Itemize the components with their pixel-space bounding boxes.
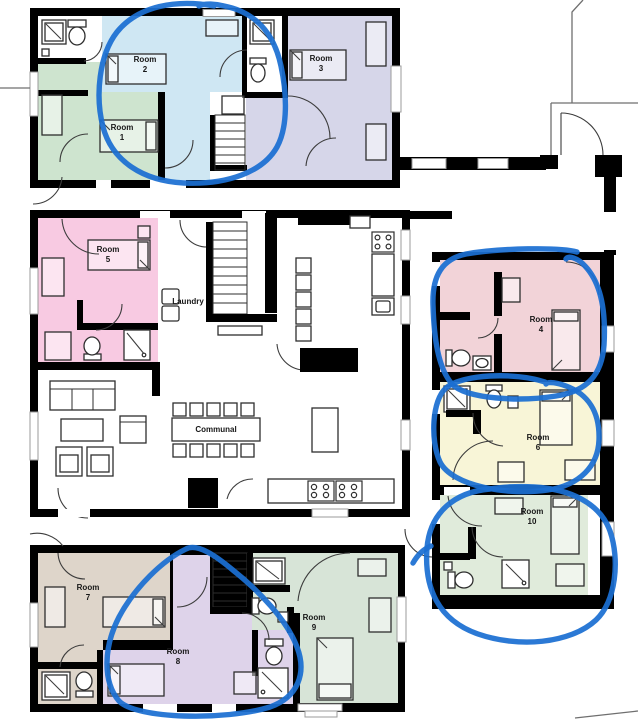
bed-icon — [317, 638, 353, 700]
opening — [604, 212, 616, 250]
opening — [140, 211, 170, 218]
window — [30, 72, 38, 116]
room-4-label-name: Room — [530, 315, 553, 324]
bed-icon — [552, 310, 580, 370]
armchair-icon — [56, 447, 82, 476]
chair-icon — [224, 403, 237, 416]
cabinet-icon — [45, 332, 71, 360]
window — [401, 420, 410, 450]
communal-label: Communal — [195, 425, 236, 434]
window — [30, 603, 38, 647]
cabinet-icon — [222, 96, 244, 114]
desk-icon — [366, 124, 386, 160]
sink-icon — [372, 298, 394, 315]
sink-icon — [444, 562, 452, 570]
desk-icon — [206, 20, 238, 36]
sofa-icon — [50, 381, 115, 410]
room-1-label-number: 1 — [120, 133, 125, 142]
bed-icon — [108, 664, 164, 696]
interior-wall — [242, 92, 288, 98]
desk-icon — [502, 278, 520, 302]
coffee-table-icon — [61, 419, 103, 441]
window — [391, 66, 401, 112]
interior-wall — [440, 553, 470, 560]
wardrobe-icon — [42, 258, 64, 296]
window — [30, 412, 38, 460]
interior-wall — [206, 222, 213, 314]
stove-icon — [372, 232, 394, 252]
chair-icon — [173, 444, 186, 457]
window — [312, 509, 348, 517]
window — [602, 420, 614, 446]
toilet-icon — [448, 572, 473, 588]
entry-door-arc — [561, 113, 603, 155]
door-opening — [58, 509, 90, 517]
wardrobe-icon — [42, 95, 62, 135]
sink-icon — [42, 49, 49, 56]
shower-icon — [253, 558, 285, 584]
sink-icon — [473, 356, 491, 370]
dining-chairs-top — [173, 403, 254, 416]
bed-icon — [551, 496, 579, 554]
interior-wall — [242, 16, 247, 92]
shower-icon — [502, 560, 529, 588]
toilet-icon — [84, 337, 101, 360]
wing-right: Room 4 Room 6 — [432, 252, 614, 609]
window — [401, 296, 410, 324]
room-4-label-number: 4 — [539, 325, 544, 334]
desk-icon — [498, 462, 524, 482]
shower-icon — [42, 672, 70, 700]
room-10-label-name: Room — [521, 507, 544, 516]
wardrobe-icon — [45, 587, 65, 627]
room-8-label-number: 8 — [176, 657, 181, 666]
toilet-icon — [265, 639, 283, 665]
door-arc — [30, 533, 63, 546]
armchair-icon — [87, 447, 113, 476]
interior-wall — [494, 272, 502, 316]
bed-icon — [103, 597, 165, 627]
window — [401, 230, 410, 260]
counter-icon — [372, 254, 394, 296]
window — [412, 159, 446, 169]
room-10-label-number: 10 — [528, 517, 537, 526]
shower-icon — [124, 330, 150, 360]
chair-icon — [241, 403, 254, 416]
room-1-label-name: Room — [111, 123, 134, 132]
interior-wall — [252, 630, 258, 676]
interior-wall — [206, 314, 277, 322]
room-9-label-name: Room — [303, 613, 326, 622]
desk-icon — [366, 22, 386, 66]
laundry-label: Laundry — [172, 297, 204, 306]
interior-wall — [103, 640, 173, 650]
room-5-label-number: 5 — [106, 255, 111, 264]
chair-icon — [224, 444, 237, 457]
interior-wall — [83, 323, 158, 330]
kitchen-island-icon — [312, 408, 338, 452]
room-8-label-name: Room — [167, 647, 190, 656]
room-2-label-number: 2 — [143, 65, 148, 74]
room-3-label-name: Room — [310, 54, 333, 63]
interior-wall — [30, 362, 160, 370]
chair-icon — [190, 444, 203, 457]
block-top-left: Room 1 Room 2 Room 3 — [30, 8, 401, 204]
room-7-label-name: Room — [77, 583, 100, 592]
interior-wall — [265, 213, 277, 313]
opening — [242, 211, 266, 218]
window — [397, 597, 406, 642]
interior-wall — [77, 300, 83, 330]
interior-wall — [446, 410, 476, 417]
window — [30, 268, 38, 314]
room-6-label-number: 6 — [536, 443, 541, 452]
chair-icon — [207, 444, 220, 457]
interior-wall — [494, 334, 502, 372]
entry-steps — [298, 704, 342, 717]
shower-icon — [42, 20, 66, 44]
cabinet-icon — [358, 559, 386, 576]
room-2-label-name: Room — [134, 55, 157, 64]
room-3-label-number: 3 — [319, 64, 324, 73]
toilet-icon — [76, 672, 93, 697]
floor-plan: Room 1 Room 2 Room 3 — [0, 0, 638, 720]
interior-wall — [38, 58, 86, 64]
interior-wall — [152, 362, 160, 396]
chair-icon — [190, 403, 203, 416]
block-middle: Laundry — [30, 210, 432, 557]
window — [478, 159, 508, 169]
interior-wall — [210, 115, 215, 170]
room-9-label-number: 9 — [312, 623, 317, 632]
interior-wall — [188, 478, 218, 508]
window — [203, 10, 235, 17]
chair-icon — [207, 403, 220, 416]
toilet-icon — [446, 350, 470, 366]
chair-icon — [173, 403, 186, 416]
desk-icon — [369, 598, 391, 632]
door-opening — [96, 180, 111, 188]
bench-icon — [218, 326, 262, 335]
cabinet-icon — [234, 672, 256, 694]
counter-icon — [350, 216, 370, 228]
door-opening — [212, 704, 236, 712]
room-5-label-name: Room — [97, 245, 120, 254]
interior-wall — [158, 92, 165, 180]
interior-wall — [300, 348, 358, 372]
toilet-icon — [250, 58, 266, 82]
desk-icon — [556, 564, 584, 586]
cabinet-icon — [138, 226, 150, 238]
desk-icon — [495, 498, 523, 514]
interior-wall — [38, 662, 97, 669]
interior-wall — [97, 650, 103, 704]
dining-chairs-bottom — [173, 444, 254, 457]
chair-icon — [241, 444, 254, 457]
wall-line — [575, 711, 638, 718]
interior-wall — [440, 312, 470, 320]
wall-line — [572, 0, 583, 103]
toilet-icon — [68, 20, 86, 45]
room-6-label-name: Room — [527, 433, 550, 442]
room-7-label-number: 7 — [86, 593, 91, 602]
cabinet-column — [296, 258, 311, 341]
wall-stub — [540, 155, 558, 169]
shower-icon — [258, 668, 288, 698]
side-chair-icon — [120, 416, 146, 443]
